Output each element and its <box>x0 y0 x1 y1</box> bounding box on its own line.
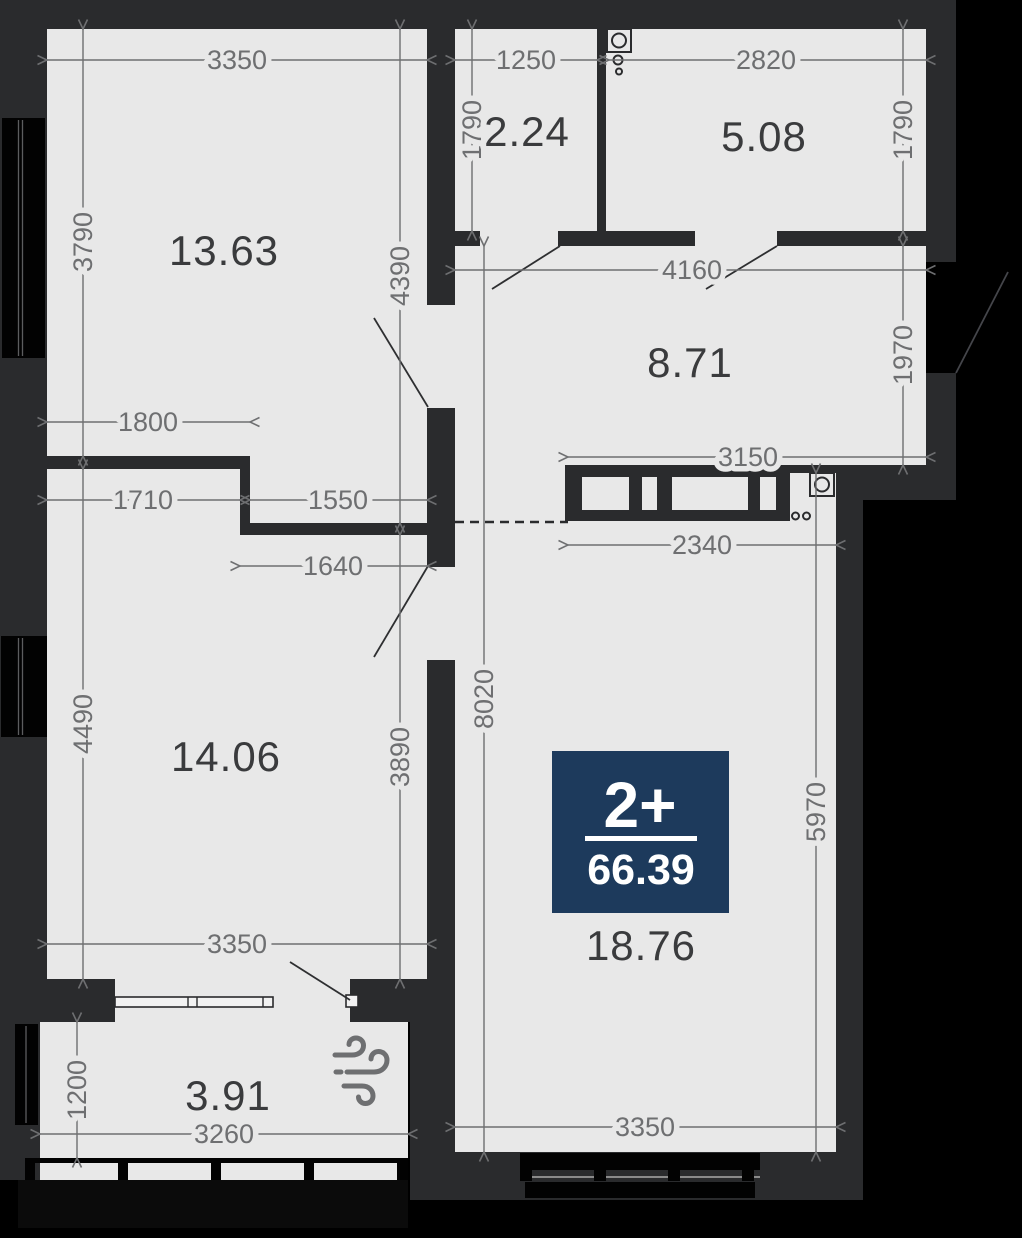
dim-label: 3350 <box>615 1112 675 1142</box>
builtin-wardrobe <box>565 465 790 521</box>
dim-label: 4490 <box>68 694 98 754</box>
dim-label: 3350 <box>207 929 267 959</box>
dim-label: 1800 <box>118 407 178 437</box>
floor-plan: 3350 1250 2820 4160 3150 2340 1800 1710 … <box>0 0 1022 1238</box>
window-icon <box>15 1024 38 1125</box>
room-area-label: 2.24 <box>484 108 570 155</box>
dim-label: 1200 <box>62 1060 92 1120</box>
dim-label: 1550 <box>308 485 368 515</box>
dim-label: 1710 <box>113 485 173 515</box>
dim-label: 1790 <box>457 100 487 160</box>
dim-label: 8020 <box>469 669 499 729</box>
dim-label: 4160 <box>662 255 722 285</box>
balcony-window <box>115 997 273 1007</box>
dim-label: 3150 <box>718 442 778 472</box>
dim-label: 3790 <box>68 212 98 272</box>
room-area-label: 3.91 <box>185 1072 271 1119</box>
dim-label: 2820 <box>736 45 796 75</box>
dim-label: 1640 <box>303 551 363 581</box>
window-icon <box>2 118 45 358</box>
badge-total-area: 66.39 <box>587 846 695 894</box>
dim-label: 2340 <box>672 530 732 560</box>
badge-rooms-label: 2+ <box>604 769 677 841</box>
floor-plan-canvas: 3350 1250 2820 4160 3150 2340 1800 1710 … <box>0 0 1022 1238</box>
apartment-badge: 2+ 66.39 <box>552 751 729 913</box>
dim-label: 3350 <box>207 45 267 75</box>
dim-label: 5970 <box>801 782 831 842</box>
dim-label: 1970 <box>888 325 918 385</box>
dim-label: 4390 <box>385 246 415 306</box>
room-area-label: 5.08 <box>721 113 807 160</box>
room-area-label: 18.76 <box>586 922 696 969</box>
dim-label: 3260 <box>194 1119 254 1149</box>
room-area-label: 14.06 <box>171 733 281 780</box>
dim-label: 1790 <box>888 100 918 160</box>
dim-label: 3890 <box>385 727 415 787</box>
window-icon <box>1 636 47 737</box>
door-handle <box>346 995 358 1007</box>
room-area-label: 13.63 <box>169 227 279 274</box>
room-area-label: 8.71 <box>647 339 733 386</box>
dim-label: 1250 <box>496 45 556 75</box>
